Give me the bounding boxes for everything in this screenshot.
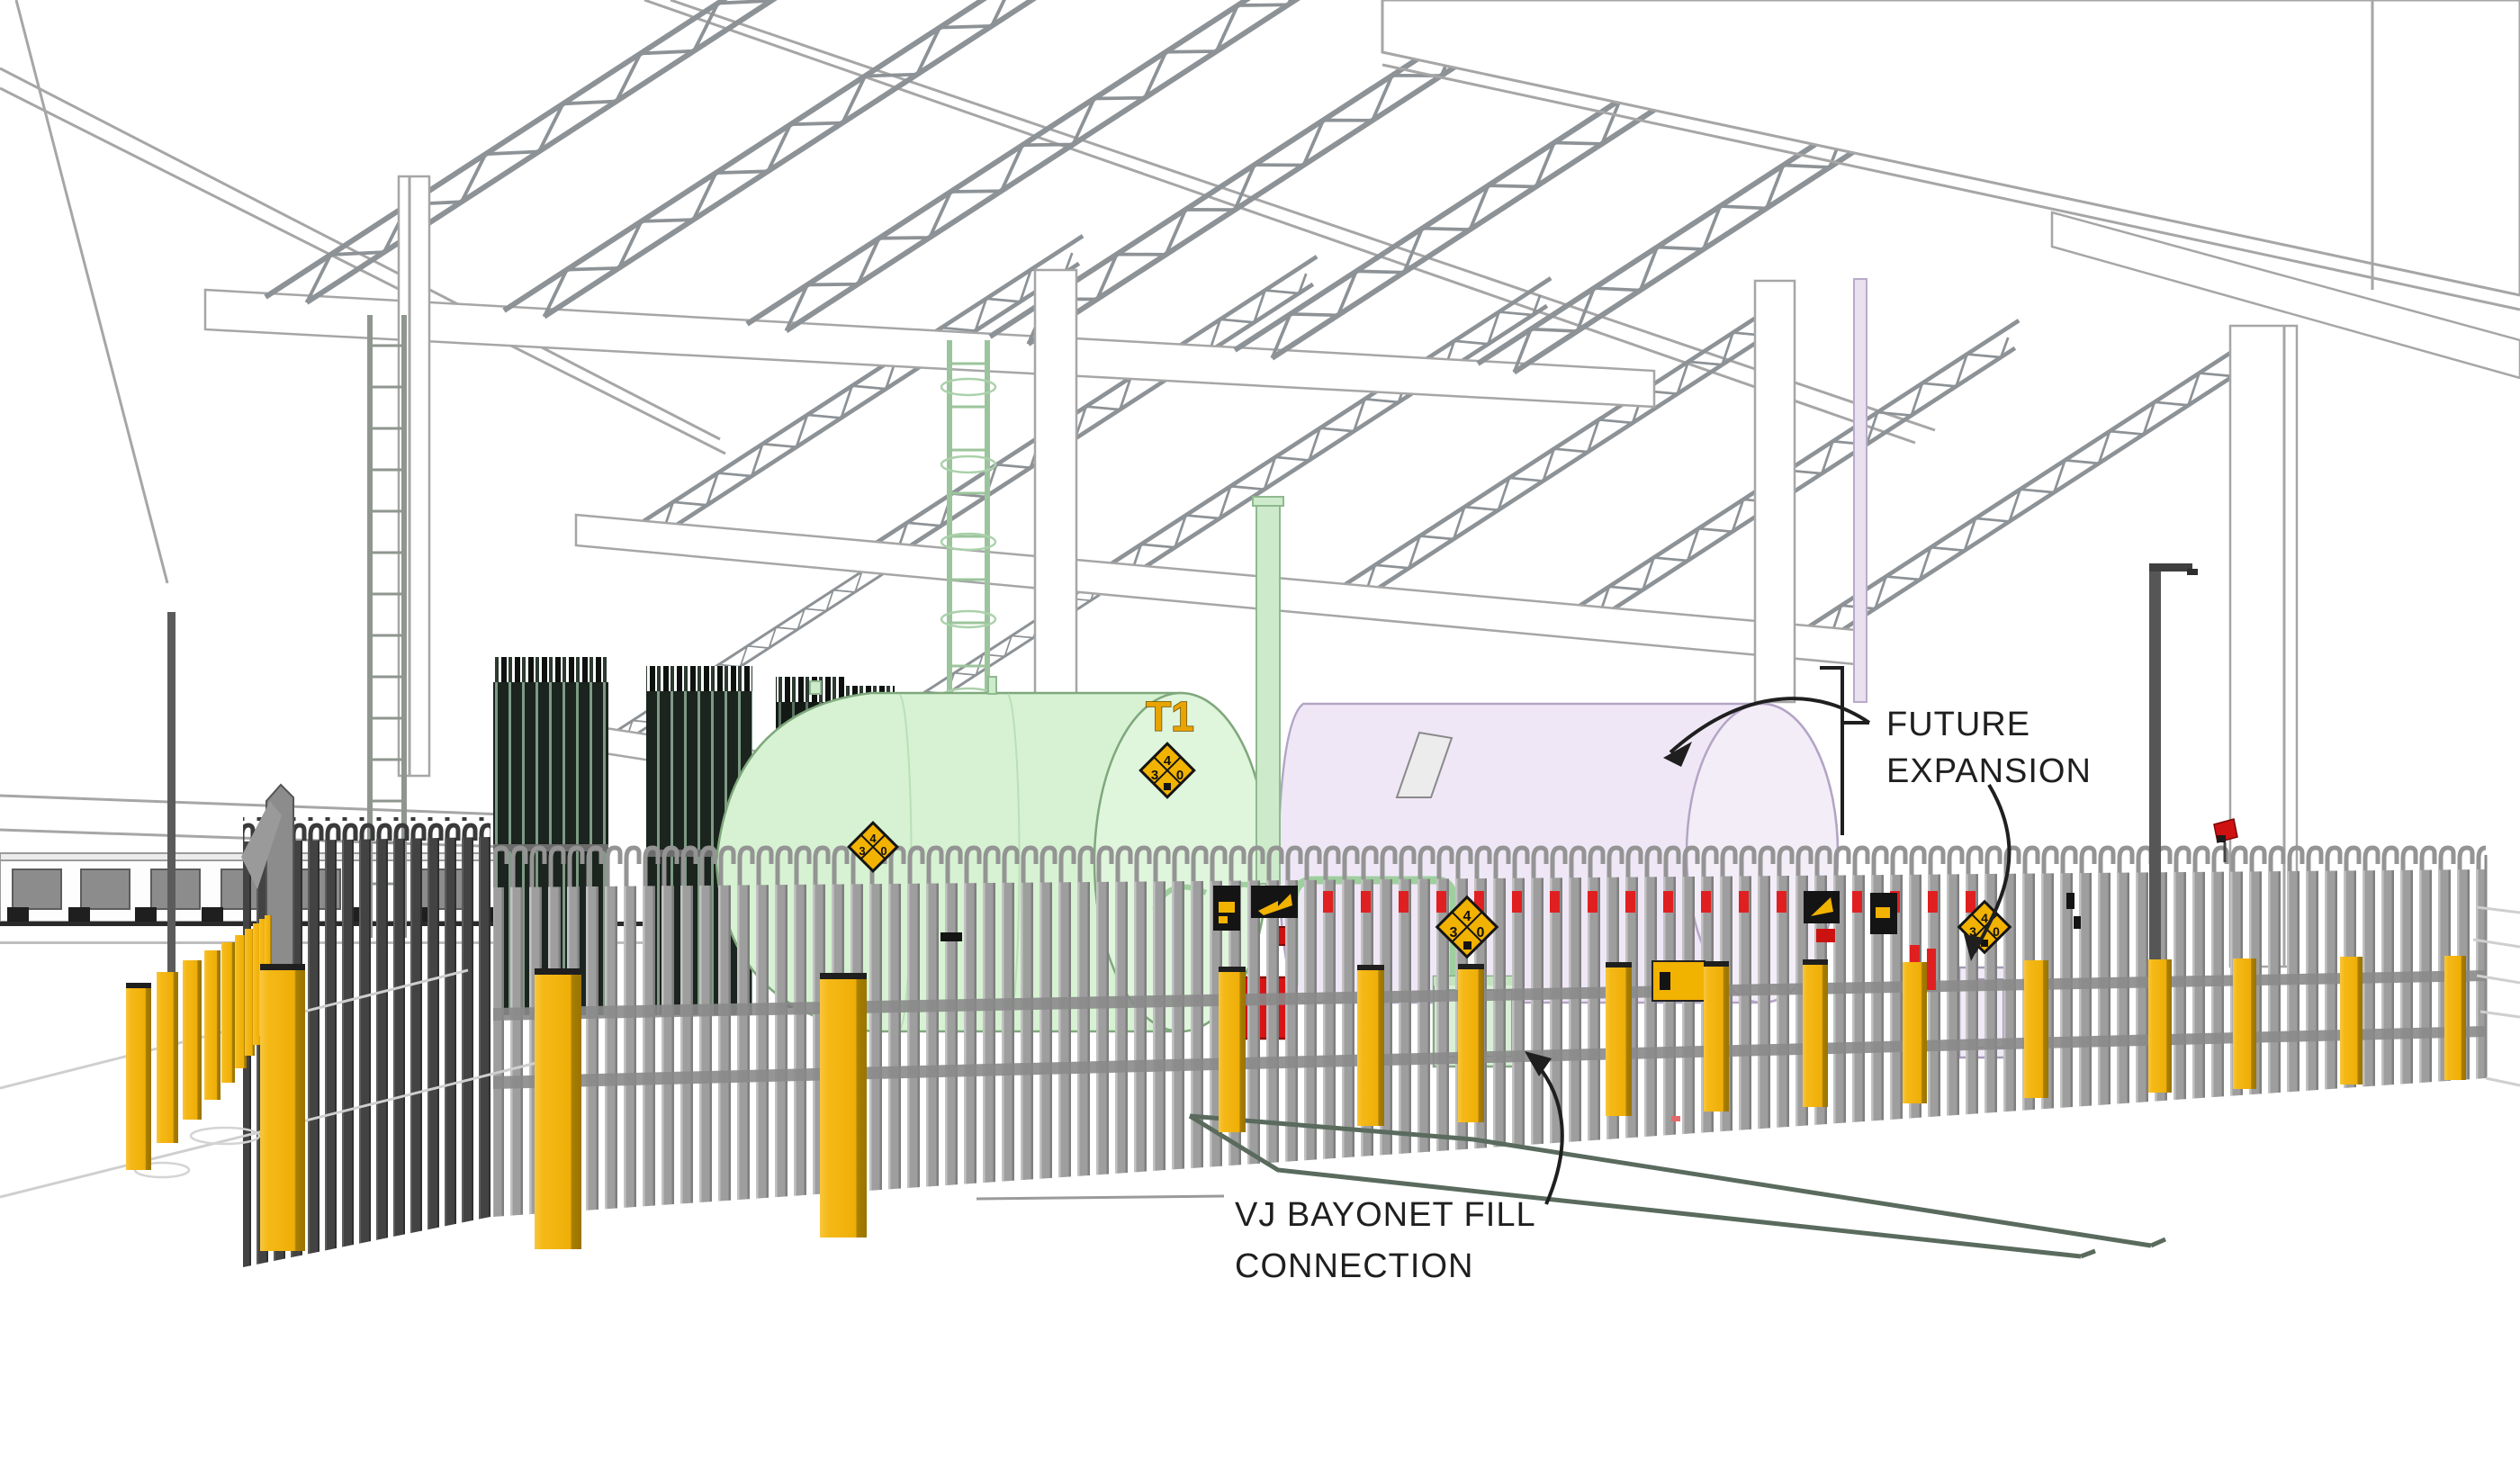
bollard	[2024, 960, 2048, 1098]
vent-pipe-green	[1253, 497, 1283, 884]
bollard	[1903, 962, 1927, 1103]
annotation-vj-line1: VJ BAYONET FILL	[1235, 1196, 1536, 1234]
warning-sign-black-1	[1213, 886, 1240, 931]
arrow-sign-black-1	[1251, 886, 1298, 918]
yellow-notice-sign	[1652, 961, 1705, 1001]
svg-text:3: 3	[1151, 768, 1158, 783]
annotation-vj-line2: CONNECTION	[1235, 1247, 1473, 1285]
bollard	[2148, 959, 2172, 1093]
column-right-center	[1755, 281, 1795, 702]
bollard	[2340, 957, 2362, 1084]
cad-rendering-lng-facility: T1	[0, 0, 2520, 1476]
warning-sign-black-2	[1870, 893, 1897, 934]
bollard	[260, 967, 305, 1251]
alarm-box-red	[1816, 929, 1835, 942]
bollard	[204, 950, 220, 1100]
bollard	[1606, 966, 1632, 1116]
bollard	[820, 976, 867, 1237]
bollard	[1458, 967, 1484, 1122]
bollard	[183, 960, 202, 1120]
svg-text:3: 3	[1450, 925, 1458, 940]
bollard	[2444, 956, 2466, 1080]
bollard	[157, 972, 178, 1143]
annotation-future-line1: FUTURE	[1886, 706, 2030, 743]
bollard	[126, 985, 151, 1170]
bollard	[1704, 965, 1729, 1111]
bollard	[2233, 958, 2256, 1089]
palisade-fence-main	[493, 842, 2486, 1217]
tank-t1-label: T1	[1146, 693, 1194, 740]
svg-text:4: 4	[1463, 909, 1471, 924]
girder-mid	[576, 515, 1856, 664]
svg-text:0: 0	[880, 844, 886, 858]
arrow-sign-black-2	[1804, 891, 1840, 923]
svg-text:0: 0	[1477, 925, 1485, 940]
tank-fitting	[988, 677, 996, 694]
svg-text:3: 3	[859, 844, 865, 858]
bollard	[1803, 963, 1828, 1107]
annotation-future-line2: EXPANSION	[1886, 752, 2092, 790]
svg-text:4: 4	[1981, 911, 1988, 925]
svg-text:4: 4	[869, 832, 877, 845]
canopy-fascia-right	[1382, 0, 2520, 378]
bollard	[221, 942, 235, 1083]
bollard	[1357, 968, 1384, 1126]
bollard	[535, 972, 581, 1249]
svg-text:0: 0	[1993, 924, 2000, 939]
tank-fitting	[810, 681, 821, 694]
pavement-marker	[1671, 1116, 1680, 1121]
canopy-corner-edge	[16, 0, 167, 583]
svg-text:0: 0	[1176, 768, 1183, 783]
svg-text:4: 4	[1164, 753, 1172, 769]
bollard	[1219, 970, 1246, 1132]
future-vent-stack	[1854, 279, 1867, 702]
